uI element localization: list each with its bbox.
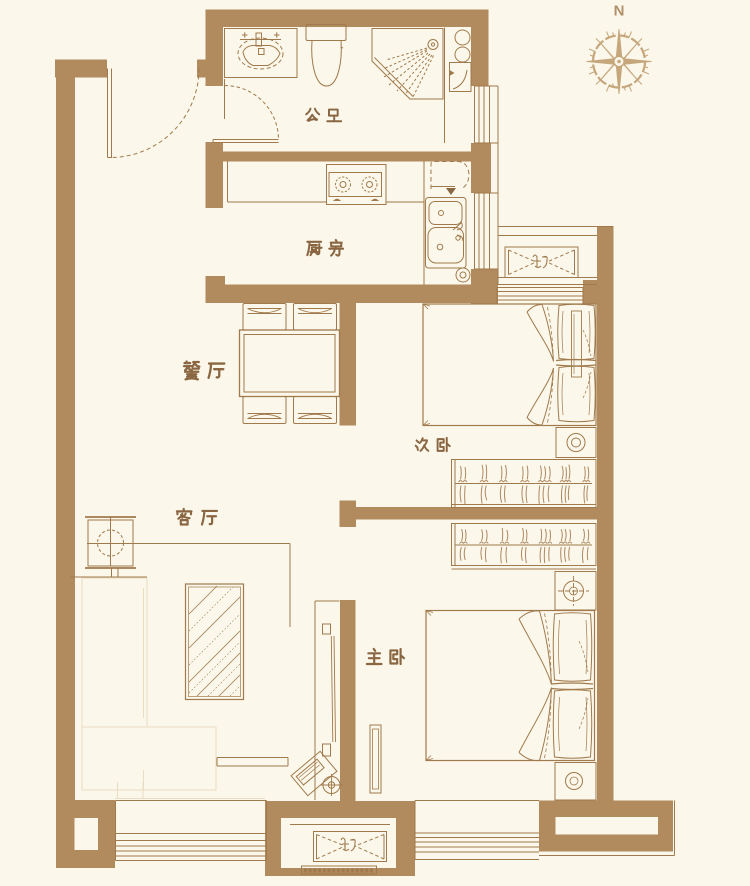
svg-text:N: N [614, 3, 625, 20]
